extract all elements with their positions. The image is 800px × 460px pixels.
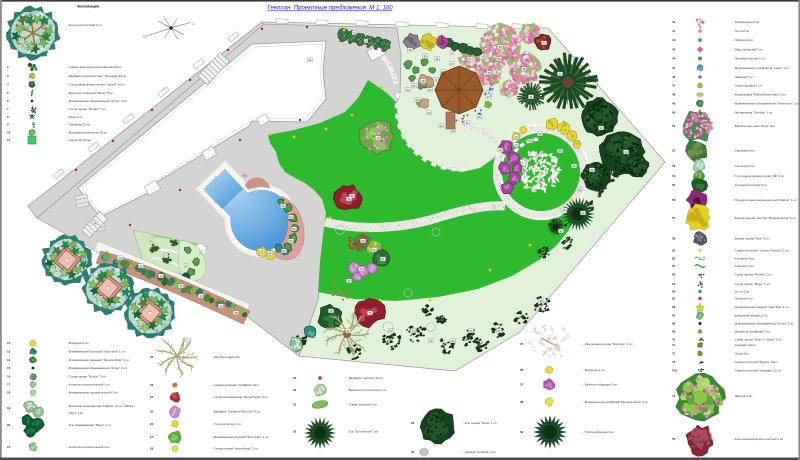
svg-text:45: 45 — [452, 129, 455, 133]
svg-text:- Хоста 8 шт: - Хоста 8 шт — [733, 29, 750, 33]
svg-text:56: 56 — [672, 198, 676, 202]
svg-text:59: 59 — [672, 249, 676, 253]
svg-text:41: 41 — [466, 121, 469, 125]
svg-text:- Можжевельник средний "Gold S: - Можжевельник средний "Gold Star" 3 шт — [733, 305, 789, 309]
svg-text:- Ива Матсудана 1шт: - Ива Матсудана 1шт — [212, 355, 241, 359]
svg-text:15: 15 — [180, 284, 183, 288]
svg-text:42: 42 — [428, 111, 431, 115]
svg-text:- Можжевельник обыкновенный "А: - Можжевельник обыкновенный "Актер" 3 шт — [67, 99, 128, 103]
svg-text:67: 67 — [672, 314, 676, 318]
svg-text:42: 42 — [672, 38, 676, 42]
svg-text:10: 10 — [7, 131, 11, 135]
svg-text:- Вейгела цветущая "Roza" 3шт: - Вейгела цветущая "Roza" 3шт — [733, 124, 776, 128]
svg-text:38: 38 — [520, 400, 524, 404]
svg-text:- Клен остролистный 3 шт: - Клен остролистный 3 шт — [67, 23, 103, 27]
svg-text:46: 46 — [488, 91, 491, 95]
svg-text:- Туя золотистая 3 шт: - Туя золотистая 3 шт — [212, 422, 242, 426]
svg-text:41: 41 — [409, 48, 412, 52]
svg-text:70: 70 — [672, 338, 676, 342]
svg-text:69: 69 — [672, 330, 676, 334]
svg-text:- Бузина красная, желтая "Plum: - Бузина красная, желтая "Plumosa Aurea"… — [733, 216, 797, 220]
svg-text:16: 16 — [7, 375, 11, 379]
svg-text:63: 63 — [672, 282, 676, 286]
svg-text:40: 40 — [672, 20, 676, 24]
svg-text:- Лещина "Contorta" 1 шт: - Лещина "Contorta" 1 шт — [463, 450, 497, 454]
svg-text:35: 35 — [488, 71, 491, 75]
svg-text:23: 23 — [348, 279, 351, 283]
svg-text:- Пираканта 1шт: - Пираканта 1шт — [733, 149, 756, 153]
svg-text:- Тимьян ползучий "Variegata": - Тимьян ползучий "Variegata" 10 шт — [733, 369, 782, 373]
svg-text:33: 33 — [600, 126, 603, 130]
svg-text:- Косатник горизонтальный 1 шт: - Косатник горизонтальный 1 шт — [67, 383, 111, 387]
svg-text:64: 64 — [672, 290, 676, 294]
svg-text:25: 25 — [360, 267, 363, 271]
svg-text:- Хоста 3 шт: - Хоста 3 шт — [733, 290, 750, 294]
svg-text:47: 47 — [672, 84, 676, 88]
svg-text:20: 20 — [7, 423, 11, 427]
svg-text:29: 29 — [362, 239, 365, 243]
svg-text:74: 74 — [672, 394, 676, 398]
svg-text:40: 40 — [483, 54, 486, 58]
svg-text:- Барбарис Тунберга "Red Chif": - Барбарис Тунберга "Red Chif" 4 шт — [212, 410, 261, 414]
svg-text:66: 66 — [672, 305, 676, 309]
svg-text:35: 35 — [499, 45, 502, 49]
svg-text:76: 76 — [672, 437, 676, 441]
svg-text:- Можжевельник горизонтальный: - Можжевельник горизонтальный 3 шт — [67, 391, 119, 395]
svg-text:- Капустный образец 5 шт: - Капустный образец 5 шт — [733, 314, 768, 318]
svg-text:46: 46 — [436, 57, 439, 61]
svg-text:64: 64 — [407, 88, 410, 92]
svg-text:- Юкка 3 шт: - Юкка 3 шт — [67, 115, 83, 119]
svg-text:- Туя восточная "Aurea Nana" 3: - Туя восточная "Aurea Nana" 3 шт — [212, 447, 259, 451]
svg-text:35: 35 — [523, 67, 526, 71]
svg-text:- Седум 30 куртин: - Седум 30 куртин — [67, 138, 91, 142]
svg-text:31: 31 — [293, 403, 297, 407]
svg-text:44: 44 — [672, 57, 676, 61]
svg-text:- Можжевельник китайский "Plum: - Можжевельник китайский "Plumosa Aurea"… — [583, 400, 649, 404]
svg-text:66: 66 — [373, 248, 376, 252]
svg-text:22: 22 — [150, 355, 154, 359]
svg-text:57: 57 — [672, 216, 676, 220]
svg-text:37: 37 — [520, 383, 524, 387]
svg-text:44: 44 — [424, 54, 427, 58]
svg-text:- Солидаго 10 шт: - Солидаго 10 шт — [733, 343, 757, 347]
svg-text:65: 65 — [416, 98, 419, 102]
svg-text:- Сирень венгерская разноцветн: - Сирень венгерская разноцветная 30 шт — [67, 65, 123, 69]
svg-text:- Можжевельник скальный "Skyro: - Можжевельник скальный "Skyrocket" 1 шт — [67, 350, 126, 354]
svg-text:33: 33 — [411, 421, 415, 425]
svg-text:- Можжевельник казацкий "Tamar: - Можжевельник казацкий "Tamariscifolia"… — [67, 358, 130, 362]
svg-text:- Косатник горизонтальный 3 шт: - Косатник горизонтальный 3 шт — [67, 445, 111, 449]
svg-text:- Форзиция 3 шт: - Форзиция 3 шт — [67, 341, 89, 345]
svg-text:- Ива цельнолистная "Flamingo": - Ива цельнолистная "Flamingo" 1 шт — [583, 342, 633, 346]
svg-text:- Ирис сибирский 3 шт: - Ирис сибирский 3 шт — [733, 48, 764, 52]
svg-text:- Туевик Жизоров 3 шт: - Туевик Жизоров 3 шт — [347, 403, 378, 407]
svg-text:67: 67 — [451, 62, 454, 66]
svg-text:- Сосна горная "Pumilio" 2 шт: - Сосна горная "Pumilio" 2 шт — [733, 273, 773, 277]
svg-text:48: 48 — [672, 93, 676, 97]
svg-text:13: 13 — [7, 350, 11, 354]
svg-text:76: 76 — [369, 311, 372, 315]
svg-text:49: 49 — [422, 79, 425, 83]
svg-text:62: 62 — [498, 329, 501, 333]
svg-text:- Вейгела гибридная 3 шт: - Вейгела гибридная 3 шт — [583, 383, 618, 387]
svg-text:- Скумпия кожевенная "Royal Pu: - Скумпия кожевенная "Royal Purple" 3 шт — [212, 395, 269, 399]
svg-text:11: 11 — [7, 138, 10, 142]
svg-text:63: 63 — [543, 41, 546, 45]
svg-text:45: 45 — [672, 66, 676, 70]
svg-text:29: 29 — [293, 376, 297, 380]
svg-text:35: 35 — [520, 342, 524, 346]
svg-text:- Можжевельник обыкновенный "А: - Можжевельник обыкновенный "Актер" 2 шт — [67, 366, 128, 370]
svg-text:73A: 73A — [672, 369, 678, 373]
svg-text:- Глициния 3 шт: - Глициния 3 шт — [733, 264, 755, 268]
svg-text:- Можжевельник обыкновенный "H: - Можжевельник обыкновенный "Horstmann" … — [733, 102, 800, 106]
svg-text:- Сосна горная "Pumilio" 3 шт: - Сосна горная "Pumilio" 3 шт — [67, 375, 107, 379]
svg-text:27: 27 — [150, 435, 154, 439]
svg-text:- Магнолия лилиецветная "Lilif: - Магнолия лилиецветная "Liliflora" 1шт … — [67, 404, 134, 408]
svg-text:65: 65 — [429, 88, 432, 92]
svg-text:16: 16 — [119, 256, 122, 260]
svg-text:56: 56 — [348, 197, 351, 201]
svg-text:34: 34 — [559, 72, 562, 76]
svg-text:41: 41 — [672, 29, 676, 33]
svg-text:46: 46 — [672, 75, 676, 79]
svg-text:57: 57 — [469, 57, 472, 61]
svg-text:39: 39 — [591, 168, 594, 172]
svg-text:- Пузыреплодник калинолистный: - Пузыреплодник калинолистный "Diabolo" … — [733, 198, 798, 202]
svg-text:64: 64 — [413, 84, 416, 88]
svg-text:- Лиственница "Pendula" 1 шт: - Лиственница "Pendula" 1 шт — [733, 111, 773, 115]
svg-text:- Спирея японская "Golden Prin: - Спирея японская "Golden Princess" 3 шт — [733, 249, 789, 253]
svg-text:Экспликация: Экспликация — [77, 5, 99, 9]
svg-text:73: 73 — [672, 360, 676, 364]
svg-text:70: 70 — [412, 329, 415, 333]
svg-text:- Барбарис пестролистные "Vari: - Барбарис пестролистные "Variegata" 40 … — [67, 74, 127, 78]
svg-text:60: 60 — [672, 257, 676, 261]
svg-text:- Лобелия 8 шт: - Лобелия 8 шт — [733, 38, 754, 42]
svg-text:21: 21 — [309, 58, 312, 62]
svg-text:- Можжевельник средний "Mint J: - Можжевельник средний "Mint Julep" 1 шт — [212, 435, 269, 439]
svg-text:18: 18 — [7, 391, 11, 395]
svg-text:50: 50 — [672, 111, 676, 115]
svg-text:- Ель обыкновенная "Barryi" 1: - Ель обыкновенная "Barryi" 1 шт — [67, 423, 112, 427]
svg-text:- Лобелия 4 шт: - Лобелия 4 шт — [733, 297, 754, 301]
svg-text:- Форзиция 1 шт: - Форзиция 1 шт — [583, 368, 605, 372]
svg-text:39: 39 — [540, 299, 543, 303]
svg-text:26: 26 — [150, 422, 154, 426]
svg-text:49: 49 — [672, 102, 676, 106]
svg-text:39: 39 — [520, 430, 524, 434]
svg-text:54: 54 — [672, 174, 676, 178]
svg-text:- Можжевельник обыкновенный "A: - Можжевельник обыкновенный "Arnold" 3 ш… — [733, 322, 794, 326]
svg-text:- Осока 5шт: - Осока 5шт — [733, 352, 750, 356]
svg-text:24: 24 — [150, 395, 154, 399]
svg-text:65: 65 — [672, 297, 676, 301]
svg-text:- Горец садовый 1 шт: - Горец садовый 1 шт — [733, 84, 763, 88]
svg-text:33: 33 — [625, 150, 628, 154]
svg-text:60: 60 — [539, 132, 542, 136]
svg-text:- Сосна горная "Mugo" 1 шт: - Сосна горная "Mugo" 1 шт — [733, 282, 771, 286]
svg-text:Генплан. Проектные предложения: Генплан. Проектные предложения. М 1: 100 — [267, 6, 393, 12]
svg-text:14: 14 — [160, 274, 163, 278]
svg-text:34: 34 — [411, 450, 415, 454]
svg-text:53: 53 — [672, 164, 676, 168]
svg-text:43: 43 — [672, 48, 676, 52]
svg-text:17: 17 — [140, 264, 143, 268]
svg-text:54: 54 — [290, 215, 293, 219]
svg-text:18: 18 — [235, 311, 238, 315]
svg-text:63: 63 — [390, 329, 393, 333]
svg-text:51: 51 — [672, 124, 676, 128]
svg-text:55: 55 — [672, 183, 676, 187]
svg-text:43: 43 — [440, 124, 443, 128]
svg-text:54: 54 — [290, 239, 293, 243]
svg-text:- Вейгела пестролистная 1 шт: - Вейгела пестролистная 1 шт — [347, 388, 388, 392]
svg-text:- Тимьян ползучий "Pigmey" 10: - Тимьян ползучий "Pigmey" 10шт — [733, 360, 779, 364]
svg-text:35: 35 — [573, 164, 576, 168]
svg-text:15: 15 — [7, 366, 11, 370]
svg-text:- Виноград тройчатый "Вичи" 5: - Виноград тройчатый "Вичи" 5 шт — [67, 91, 114, 95]
svg-text:С: С — [192, 21, 195, 26]
svg-text:13: 13 — [200, 294, 203, 298]
svg-text:- Сосна горная "Orion" и "Mop: - Сосна горная "Orion" и "Mops" 5 шт — [733, 338, 783, 342]
svg-text:62: 62 — [452, 339, 455, 343]
svg-text:- Спирея японская "Goldflame": - Спирея японская "Goldflame" 5шт — [212, 383, 260, 387]
svg-text:28: 28 — [150, 447, 154, 451]
svg-text:25: 25 — [150, 410, 154, 414]
svg-text:- Сосна горная "Pumilio" 7 шт: - Сосна горная "Pumilio" 7 шт — [67, 107, 107, 111]
svg-text:55: 55 — [293, 227, 296, 231]
svg-text:12: 12 — [269, 251, 272, 255]
svg-text:- Туя распростертая 5 шт: - Туя распростертая 5 шт — [733, 183, 767, 187]
svg-text:36: 36 — [559, 149, 562, 153]
svg-text:32: 32 — [293, 430, 297, 434]
svg-text:24: 24 — [515, 143, 518, 147]
svg-text:- Пихта сибирская 3 шт: - Пихта сибирская 3 шт — [583, 430, 615, 434]
svg-text:58: 58 — [672, 237, 676, 241]
svg-text:Ю: Ю — [143, 34, 147, 39]
svg-text:36: 36 — [520, 368, 524, 372]
svg-text:12: 12 — [7, 341, 11, 345]
svg-text:- Туя средняя прямостоячая "НВ: - Туя средняя прямостоячая "НВ" 2 шт — [733, 174, 785, 178]
svg-text:- Молодило кровельное 20 шт: - Молодило кровельное 20 шт — [67, 131, 108, 135]
svg-text:62: 62 — [672, 273, 676, 277]
svg-text:32: 32 — [582, 211, 585, 215]
svg-text:- Лаванда 5 шт: - Лаванда 5 шт — [733, 75, 754, 79]
svg-text:- Мискантус китайский 2 шт: - Мискантус китайский 2 шт — [733, 330, 771, 334]
svg-text:- Цветник 1 шт: - Цветник 1 шт — [733, 394, 753, 398]
svg-text:21: 21 — [7, 445, 11, 449]
svg-text:14: 14 — [7, 358, 11, 362]
svg-text:30: 30 — [293, 388, 297, 392]
svg-text:63: 63 — [470, 329, 473, 333]
svg-text:- Туя средняя прямостоячая "Ho: - Туя средняя прямостоячая "Holova" 14 ш… — [67, 83, 126, 87]
svg-text:73: 73 — [435, 78, 438, 82]
svg-text:- Nigra" 1 шт: - Nigra" 1 шт — [67, 411, 84, 415]
svg-text:19: 19 — [377, 136, 380, 140]
svg-text:- Клематис 4 шт: - Клематис 4 шт — [733, 257, 755, 261]
svg-text:52: 52 — [672, 149, 676, 153]
svg-text:- Ель "Echiniformis" 1шт: - Ель "Echiniformis" 1шт — [347, 430, 379, 434]
svg-text:- Ель черная "Nana" 1 шт: - Ель черная "Nana" 1 шт — [463, 421, 497, 425]
svg-text:- Лилейник яблоня 3 шт: - Лилейник яблоня 3 шт — [733, 57, 766, 61]
svg-text:53: 53 — [282, 204, 285, 208]
svg-text:62: 62 — [560, 229, 563, 233]
svg-text:64: 64 — [478, 115, 481, 119]
svg-text:19: 19 — [7, 406, 11, 410]
svg-text:58: 58 — [498, 57, 501, 61]
svg-text:- Кипарисовик "Filifera Aurea: - Кипарисовик "Filifera Aurea Nana" 2 шт — [733, 93, 787, 97]
svg-text:25: 25 — [499, 148, 502, 152]
svg-text:71: 71 — [672, 343, 676, 347]
svg-text:22: 22 — [347, 329, 350, 333]
svg-text:12: 12 — [261, 249, 264, 253]
svg-text:- Рододендрон 5 шт: - Рододендрон 5 шт — [733, 20, 760, 24]
svg-text:61: 61 — [672, 264, 676, 268]
svg-text:63: 63 — [430, 339, 433, 343]
svg-text:27: 27 — [382, 257, 385, 261]
svg-text:47: 47 — [487, 95, 490, 99]
svg-text:31: 31 — [530, 95, 533, 99]
svg-text:- Можжевельник чешуйчатый "Lod: - Можжевельник чешуйчатый "Loder" 4 шт — [733, 66, 790, 70]
svg-text:- Барбарис "Admiral" 12 шт: - Барбарис "Admiral" 12 шт — [347, 376, 384, 380]
svg-text:14: 14 — [220, 304, 223, 308]
svg-text:52: 52 — [283, 249, 286, 253]
svg-text:20: 20 — [330, 309, 333, 313]
svg-text:- Клен японский красно-листный: - Клен японский красно-листный 1 шт — [733, 437, 784, 441]
svg-text:59: 59 — [529, 139, 532, 143]
svg-text:10: 10 — [94, 221, 97, 225]
svg-text:17: 17 — [7, 383, 11, 387]
svg-text:68: 68 — [672, 322, 676, 326]
svg-text:- Овсяница 20 шт: - Овсяница 20 шт — [67, 123, 91, 127]
svg-text:32: 32 — [563, 208, 566, 212]
svg-text:- Гортензия 5 шт: - Гортензия 5 шт — [733, 164, 756, 168]
svg-text:- Бузина черная "Eva" 3 шт: - Бузина черная "Eva" 3 шт — [733, 237, 770, 241]
svg-text:23: 23 — [150, 383, 154, 387]
svg-text:72: 72 — [672, 352, 676, 356]
